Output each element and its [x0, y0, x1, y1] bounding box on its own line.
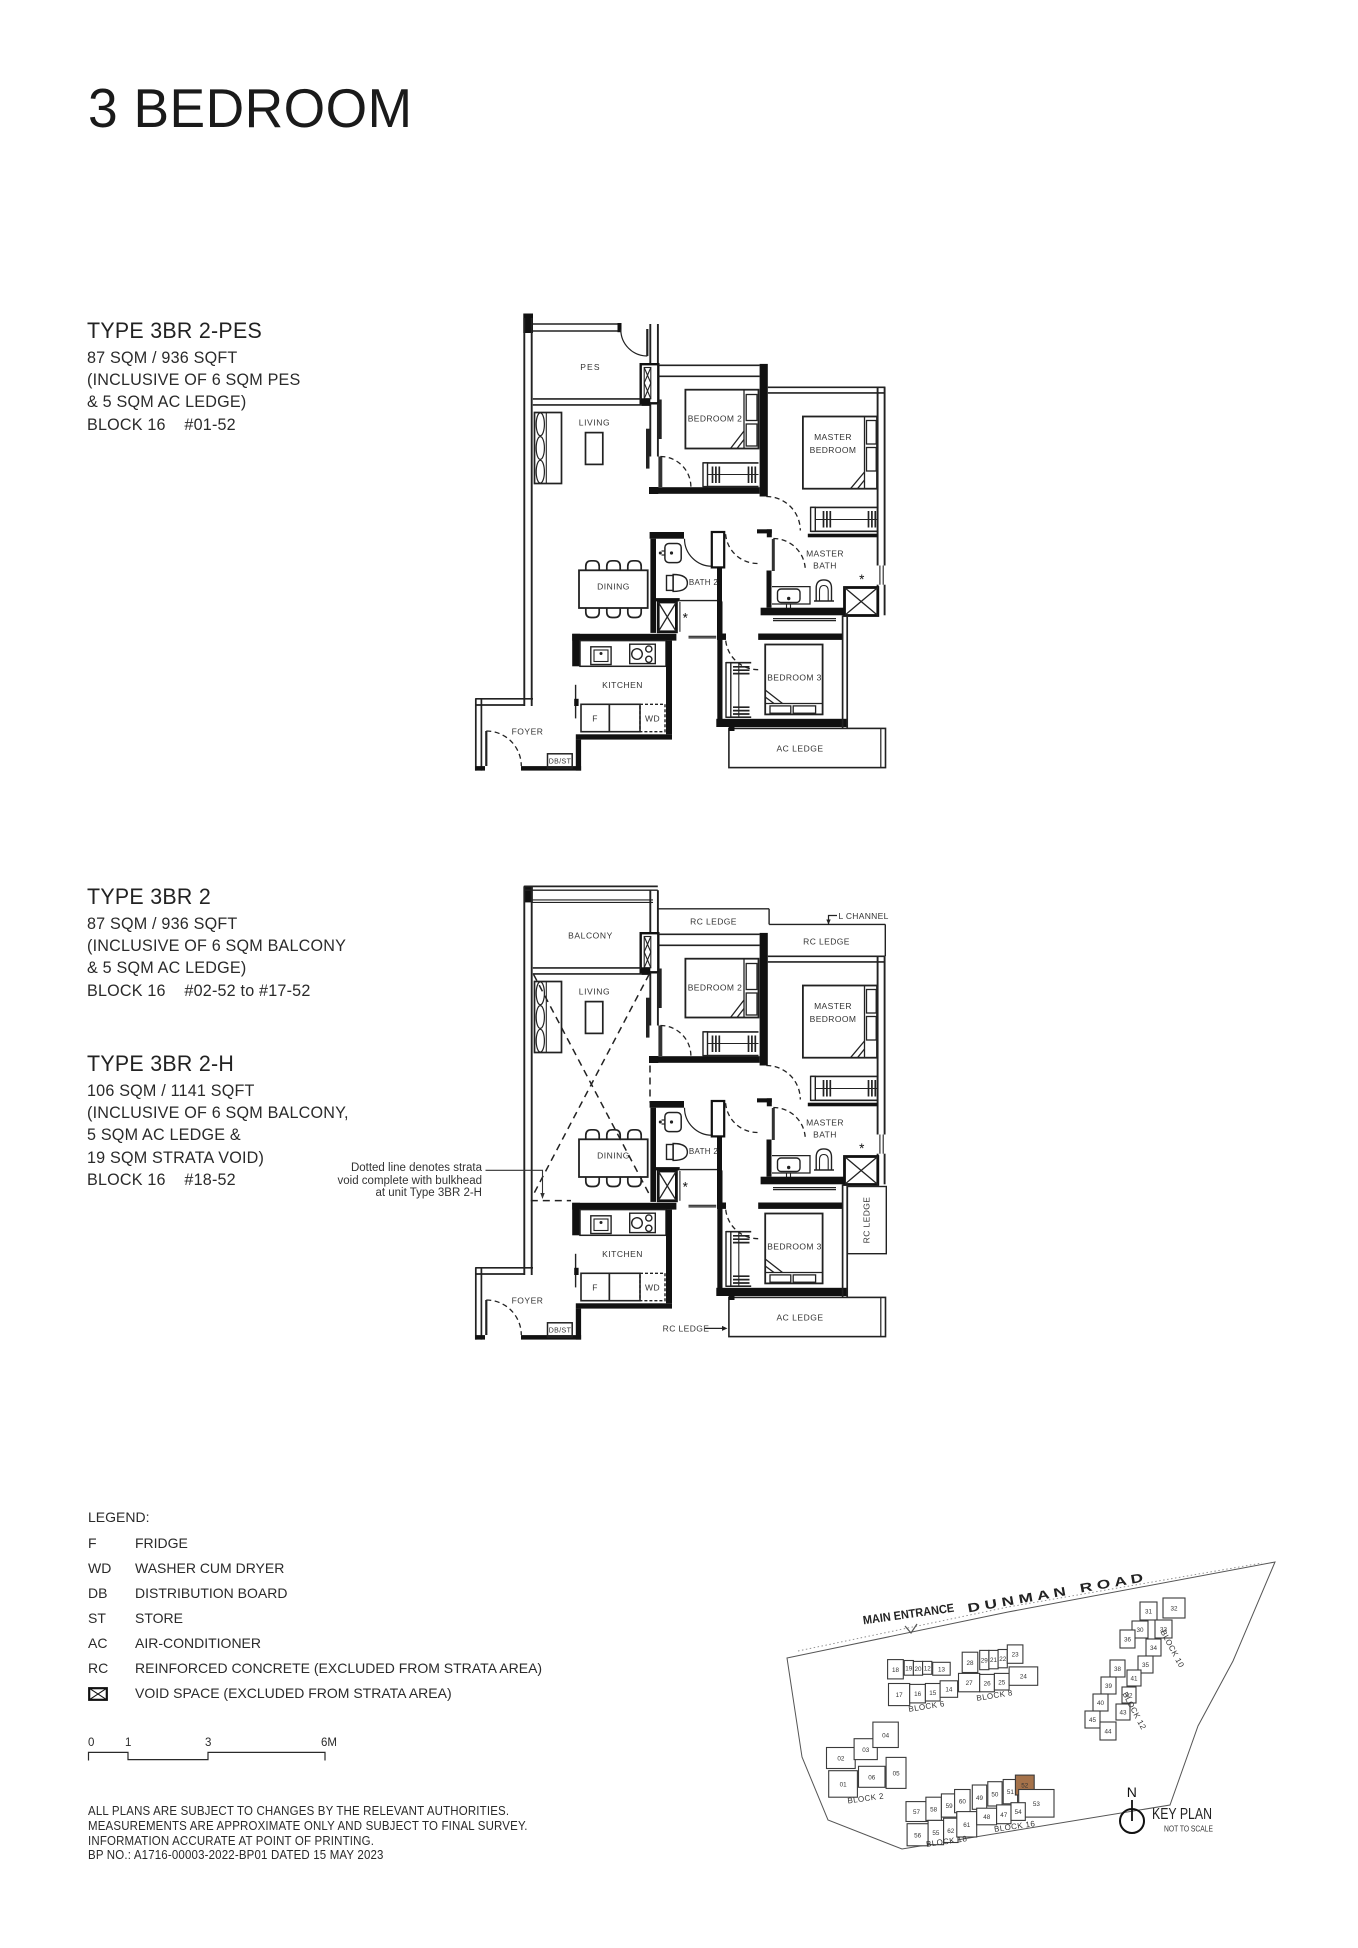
- svg-text:MASTER: MASTER: [814, 432, 852, 442]
- svg-text:29: 29: [981, 1658, 989, 1665]
- svg-text:02: 02: [837, 1756, 845, 1763]
- svg-text:D U N M A N R O A D: D U N M A N R O A D: [966, 1571, 1144, 1616]
- svg-text:MASTER: MASTER: [806, 1118, 844, 1128]
- svg-text:43: 43: [1119, 1710, 1127, 1717]
- svg-text:14: 14: [945, 1687, 953, 1694]
- svg-text:1: 1: [125, 1737, 131, 1749]
- svg-text:RC LEDGE: RC LEDGE: [663, 1324, 710, 1334]
- svg-text:20: 20: [914, 1666, 922, 1673]
- svg-text:56: 56: [914, 1832, 922, 1839]
- svg-text:03: 03: [862, 1747, 870, 1754]
- svg-text:BEDROOM 3: BEDROOM 3: [767, 673, 822, 683]
- svg-text:44: 44: [1104, 1729, 1112, 1736]
- svg-text:06: 06: [868, 1774, 876, 1781]
- svg-text:13: 13: [938, 1666, 946, 1673]
- svg-text:BATH: BATH: [813, 1130, 837, 1140]
- svg-text:15: 15: [929, 1690, 937, 1697]
- svg-text:57: 57: [913, 1809, 921, 1816]
- svg-text:21: 21: [990, 1657, 998, 1664]
- svg-text:DINING: DINING: [597, 1151, 630, 1161]
- svg-text:BEDROOM 3: BEDROOM 3: [767, 1242, 822, 1252]
- svg-text:35: 35: [1142, 1662, 1150, 1669]
- svg-text:58: 58: [930, 1806, 938, 1813]
- svg-text:RC LEDGE: RC LEDGE: [862, 1197, 872, 1244]
- svg-text:BATH 2: BATH 2: [689, 1147, 718, 1156]
- svg-text:23: 23: [1012, 1652, 1020, 1659]
- svg-text:DB/ST: DB/ST: [549, 1328, 572, 1335]
- svg-text:LIVING: LIVING: [579, 418, 610, 428]
- svg-text:12: 12: [924, 1666, 932, 1673]
- svg-text:FOYER: FOYER: [512, 727, 544, 737]
- svg-text:*: *: [683, 1180, 689, 1195]
- svg-text:BATH 2: BATH 2: [689, 578, 718, 587]
- svg-text:KITCHEN: KITCHEN: [602, 1249, 643, 1259]
- svg-text:41: 41: [1130, 1676, 1138, 1683]
- svg-text:DINING: DINING: [597, 582, 630, 592]
- svg-text:BEDROOM 2: BEDROOM 2: [688, 414, 743, 424]
- svg-text:BALCONY: BALCONY: [568, 931, 613, 941]
- svg-text:WD: WD: [645, 714, 660, 724]
- svg-text:60: 60: [959, 1799, 967, 1806]
- svg-text:05: 05: [893, 1771, 901, 1778]
- svg-text:*: *: [859, 1141, 865, 1156]
- svg-text:MAIN ENTRANCE: MAIN ENTRANCE: [862, 1601, 955, 1628]
- svg-text:45: 45: [1089, 1717, 1097, 1724]
- svg-text:36: 36: [1124, 1637, 1132, 1644]
- svg-text:L CHANNEL: L CHANNEL: [839, 911, 889, 921]
- svg-text:40: 40: [1097, 1700, 1105, 1707]
- svg-text:48: 48: [983, 1814, 991, 1821]
- svg-text:RC LEDGE: RC LEDGE: [803, 937, 850, 947]
- svg-text:28: 28: [966, 1660, 974, 1667]
- svg-text:31: 31: [1145, 1609, 1153, 1616]
- svg-text:DB/ST: DB/ST: [549, 759, 572, 766]
- svg-text:54: 54: [1015, 1809, 1023, 1816]
- svg-text:6M: 6M: [321, 1737, 337, 1749]
- svg-text:59: 59: [946, 1803, 954, 1810]
- svg-text:52: 52: [1021, 1783, 1029, 1790]
- svg-text:62: 62: [947, 1828, 955, 1835]
- svg-text:51: 51: [1007, 1789, 1015, 1796]
- svg-text:BEDROOM 2: BEDROOM 2: [688, 983, 743, 993]
- svg-text:MASTER: MASTER: [806, 549, 844, 559]
- svg-text:KITCHEN: KITCHEN: [602, 680, 643, 690]
- svg-text:BEDROOM: BEDROOM: [810, 1014, 857, 1024]
- svg-text:30: 30: [1136, 1627, 1144, 1634]
- svg-text:LIVING: LIVING: [579, 987, 610, 997]
- svg-text:01: 01: [840, 1782, 848, 1789]
- svg-text:18: 18: [892, 1667, 900, 1674]
- svg-text:AC LEDGE: AC LEDGE: [777, 744, 824, 754]
- svg-text:26: 26: [984, 1681, 992, 1688]
- svg-text:34: 34: [1150, 1645, 1158, 1652]
- svg-text:61: 61: [963, 1822, 971, 1829]
- svg-text:N: N: [1127, 1784, 1138, 1800]
- svg-text:32: 32: [1170, 1606, 1178, 1613]
- svg-text:19: 19: [905, 1665, 913, 1672]
- svg-text:PES: PES: [580, 362, 601, 372]
- svg-text:50: 50: [991, 1792, 999, 1799]
- svg-text:39: 39: [1105, 1683, 1113, 1690]
- svg-text:WD: WD: [645, 1283, 660, 1293]
- svg-text:24: 24: [1020, 1674, 1028, 1681]
- svg-text:16: 16: [914, 1691, 922, 1698]
- svg-text:3: 3: [205, 1737, 211, 1749]
- svg-text:AC LEDGE: AC LEDGE: [777, 1313, 824, 1323]
- svg-text:47: 47: [1000, 1812, 1008, 1819]
- svg-text:04: 04: [882, 1732, 890, 1739]
- svg-text:49: 49: [976, 1795, 984, 1802]
- svg-text:F: F: [592, 1283, 598, 1293]
- svg-text:*: *: [859, 572, 865, 587]
- svg-text:BEDROOM: BEDROOM: [810, 445, 857, 455]
- svg-text:25: 25: [998, 1679, 1006, 1686]
- svg-text:38: 38: [1114, 1666, 1122, 1673]
- svg-text:RC LEDGE: RC LEDGE: [690, 917, 737, 927]
- svg-text:53: 53: [1033, 1801, 1041, 1808]
- svg-text:NOT TO SCALE: NOT TO SCALE: [1164, 1824, 1213, 1834]
- svg-text:22: 22: [999, 1656, 1007, 1663]
- svg-text:KEY PLAN: KEY PLAN: [1152, 1806, 1212, 1823]
- svg-text:17: 17: [896, 1692, 904, 1699]
- svg-text:BATH: BATH: [813, 561, 837, 571]
- svg-text:F: F: [592, 714, 598, 724]
- svg-text:FOYER: FOYER: [512, 1296, 544, 1306]
- svg-text:27: 27: [966, 1680, 974, 1687]
- svg-text:MASTER: MASTER: [814, 1001, 852, 1011]
- svg-text:55: 55: [932, 1830, 940, 1837]
- svg-text:0: 0: [88, 1737, 94, 1749]
- svg-text:*: *: [683, 611, 689, 626]
